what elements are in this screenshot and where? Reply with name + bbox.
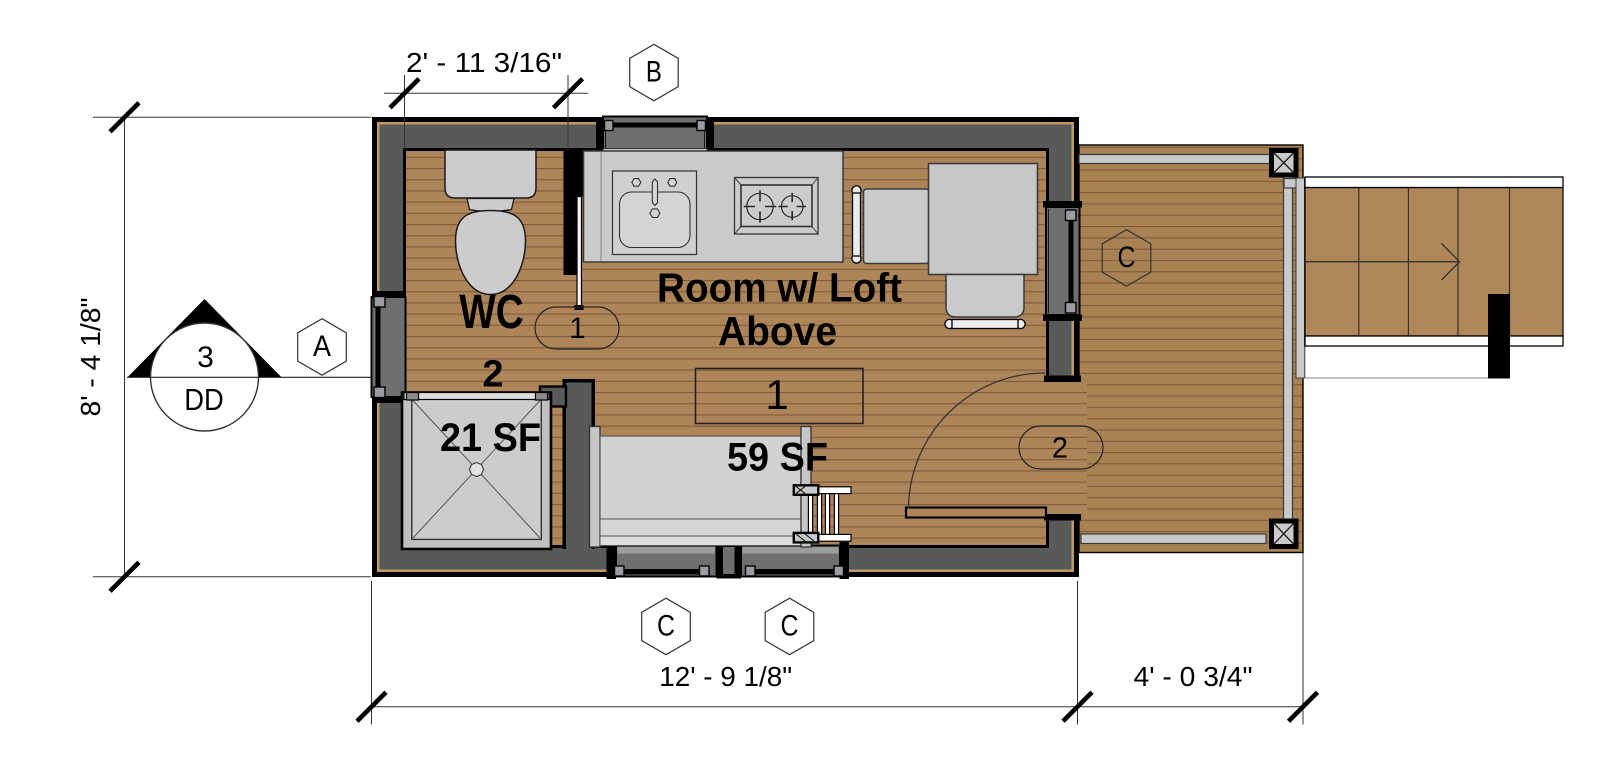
svg-text:1: 1: [569, 312, 585, 345]
svg-text:A: A: [313, 330, 331, 363]
svg-text:2: 2: [482, 354, 503, 396]
svg-text:59 SF: 59 SF: [727, 436, 828, 480]
svg-text:1: 1: [765, 371, 788, 418]
svg-text:B: B: [646, 56, 662, 89]
svg-text:8' - 4 1/8": 8' - 4 1/8": [75, 298, 106, 417]
svg-text:C: C: [781, 610, 799, 643]
svg-text:12' - 9 1/8": 12' - 9 1/8": [659, 661, 792, 692]
svg-text:Above: Above: [718, 308, 837, 354]
svg-text:C: C: [1118, 241, 1136, 274]
svg-text:WC: WC: [459, 286, 524, 339]
svg-text:4' - 0 3/4": 4' - 0 3/4": [1134, 661, 1253, 692]
svg-text:21 SF: 21 SF: [440, 416, 541, 460]
svg-text:2: 2: [1052, 433, 1068, 465]
svg-text:Room w/ Loft: Room w/ Loft: [657, 265, 902, 311]
svg-text:C: C: [657, 610, 675, 643]
svg-text:3: 3: [197, 341, 214, 374]
svg-text:2' - 11 3/16": 2' - 11 3/16": [406, 47, 562, 78]
svg-text:DD: DD: [184, 382, 224, 417]
